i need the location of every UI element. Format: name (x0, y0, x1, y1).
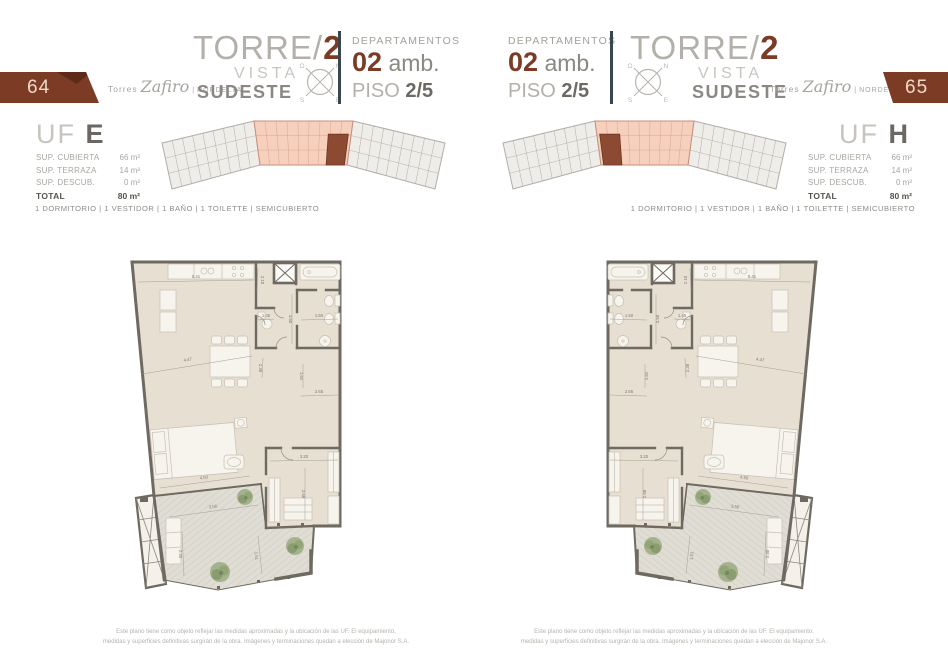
dimension-label: 2.38 (685, 363, 690, 372)
brand-separator: | (192, 87, 194, 94)
brand-torres: Torres (108, 84, 138, 94)
piso-line-left: PISO 2/5 (352, 81, 433, 101)
unit-title-right: UF H (812, 121, 910, 148)
direction-label-left: SUDESTE (197, 83, 293, 101)
dimension-label: 5.41 (748, 274, 757, 279)
table-row: SUP. CUBIERTA66 m² (808, 152, 912, 165)
keyplan-graphics (503, 121, 786, 189)
torre-number: 2 (760, 29, 779, 66)
brand-logo-right: Torres Zafiro | NORDELTA (770, 79, 904, 95)
piso-label: PISO (508, 80, 556, 102)
header-divider-right (610, 31, 613, 104)
table-row-total: TOTAL80 m² (36, 190, 140, 203)
dimension-label: 2.30 (178, 550, 183, 559)
unit-title-left: UF E (36, 121, 106, 148)
plan-graphics (132, 262, 340, 590)
uf-label: UF (36, 119, 76, 149)
dimension-label: 1.61 (299, 372, 304, 381)
uf-label: UF (839, 119, 879, 149)
compass-icon: O N S E (624, 55, 672, 103)
table-row: SUP. DESCUB.0 m² (808, 177, 912, 190)
keyplan-graphics (162, 121, 445, 189)
amb-number: 02 (508, 47, 538, 77)
table-row: SUP. CUBIERTA66 m² (36, 152, 140, 165)
compass-south: S (628, 97, 633, 103)
dimension-label: 1.50 (625, 313, 634, 318)
vista-label-right: VISTA (698, 66, 763, 82)
compass-west: O (299, 63, 304, 70)
disclaimer-right: Este plano tiene como objeto reflejar la… (502, 628, 846, 647)
brand-separator: | (854, 87, 856, 94)
departamentos-label-right: DEPARTAMENTOS (508, 36, 616, 47)
keyplan-left (156, 110, 460, 206)
compass-south: S (300, 97, 305, 103)
dimension-label: 3.50 (288, 315, 293, 324)
unit-table-left: SUP. CUBIERTA66 m² SUP. TERRAZA14 m² SUP… (36, 152, 140, 202)
brand-zafiro: Zafiro (141, 79, 190, 95)
dimension-label: 2.10 (683, 275, 688, 284)
vista-label-left: VISTA (234, 66, 299, 82)
dimension-label: 1.45 (262, 313, 271, 318)
dimension-label: 2.68 (642, 489, 647, 498)
compass-north: N (664, 63, 669, 70)
dimension-label: 1.50 (315, 313, 324, 318)
dimension-label: 2.65 (625, 389, 634, 394)
uf-letter: H (889, 119, 911, 149)
table-row: SUP. TERRAZA14 m² (808, 165, 912, 178)
page-number-badge-right: 65 (883, 72, 948, 103)
brand-torres: Torres (770, 84, 800, 94)
compass-icon: O N S E (296, 55, 344, 103)
dimension-label: 1.61 (644, 371, 649, 380)
dimension-label: 3.20 (640, 454, 649, 459)
table-row: SUP. TERRAZA14 m² (36, 165, 140, 178)
table-row: SUP. DESCUB.0 m² (36, 177, 140, 190)
departamentos-label-left: DEPARTAMENTOS (352, 36, 460, 47)
floorplan-right: 5.412.101.451.503.502.384.472.651.613.20… (574, 246, 830, 618)
header-divider-left (338, 31, 341, 104)
dimension-label: 1.51 (689, 551, 695, 560)
piso-label: PISO (352, 80, 400, 102)
dimension-label: 1.45 (678, 313, 687, 318)
table-row-total: TOTAL80 m² (808, 190, 912, 203)
dimension-label: 2.38 (258, 364, 263, 373)
dimension-label: 2.68 (301, 490, 306, 499)
amb-label: amb. (388, 50, 439, 76)
amb-number: 02 (352, 47, 382, 77)
floorplan-left: 5.412.101.451.503.502.384.472.651.613.20… (118, 246, 374, 618)
amb-line-right: 02 amb. (508, 49, 596, 76)
badge-fold-decoration (57, 72, 91, 84)
piso-value: 2/5 (561, 80, 589, 102)
piso-line-right: PISO 2/5 (508, 81, 589, 101)
dimension-label: 3.20 (300, 454, 309, 459)
amb-label: amb. (544, 50, 595, 76)
dimension-label: 2.65 (315, 389, 324, 394)
features-line-right: 1 DORMITORIO | 1 VESTIDOR | 1 BAÑO | 1 T… (631, 204, 915, 213)
keyplan-right (488, 110, 792, 206)
page-number: 64 (27, 77, 50, 99)
dimension-label: 2.30 (765, 549, 770, 558)
dimension-label: 5.41 (192, 274, 201, 279)
brochure-spread: 64 Torres Zafiro | NORDELTA TORRE/2 VIST… (0, 0, 948, 670)
dimension-label: 1.51 (254, 551, 260, 560)
plan-graphics (608, 262, 816, 590)
features-line-left: 1 DORMITORIO | 1 VESTIDOR | 1 BAÑO | 1 T… (35, 204, 319, 213)
disclaimer-left: Este plano tiene como objeto reflejar la… (96, 628, 416, 647)
amb-line-left: 02 amb. (352, 49, 440, 76)
unit-table-right: SUP. CUBIERTA66 m² SUP. TERRAZA14 m² SUP… (808, 152, 912, 202)
compass-east: E (664, 97, 669, 103)
page-number: 65 (905, 77, 928, 99)
page-number-badge-left: 64 (0, 72, 100, 103)
piso-value: 2/5 (405, 80, 433, 102)
compass-west: O (627, 63, 632, 70)
dimension-label: 2.10 (260, 276, 265, 285)
brand-zafiro: Zafiro (803, 79, 852, 95)
dimension-label: 3.50 (655, 314, 660, 323)
uf-letter: E (86, 119, 106, 149)
